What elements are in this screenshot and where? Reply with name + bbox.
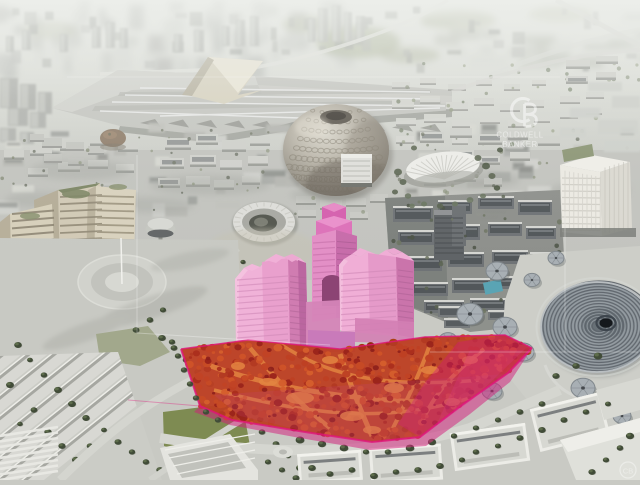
svg-text:CB: CB [623,467,633,476]
svg-text:COLDWELL: COLDWELL [496,131,543,140]
svg-text:BANKER: BANKER [502,140,537,149]
